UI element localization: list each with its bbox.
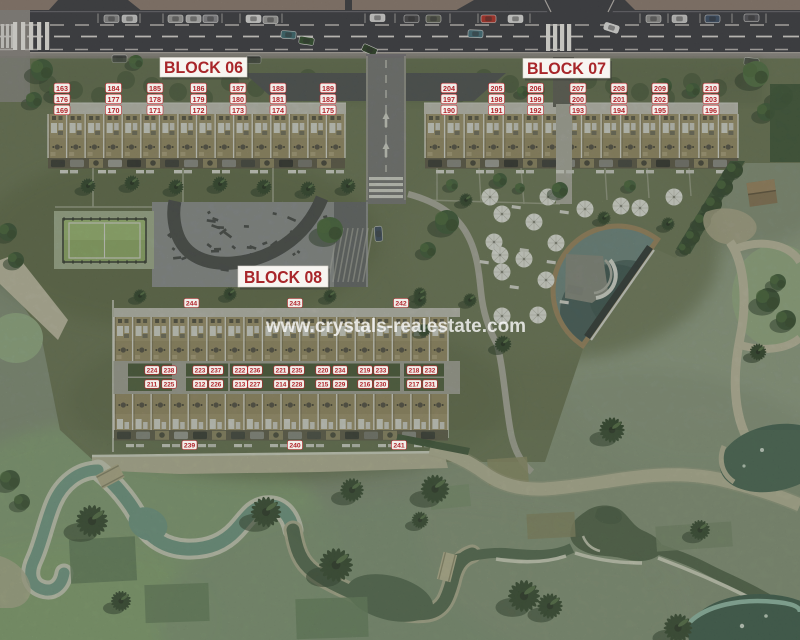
svg-text:228: 228: [292, 382, 303, 389]
svg-text:223: 223: [195, 368, 206, 375]
svg-text:171: 171: [149, 106, 161, 115]
svg-text:174: 174: [272, 106, 284, 115]
svg-text:209: 209: [654, 84, 666, 93]
svg-text:212: 212: [195, 382, 206, 389]
svg-text:www.crystals-realestate.com: www.crystals-realestate.com: [265, 316, 526, 337]
svg-text:226: 226: [211, 382, 222, 389]
svg-text:189: 189: [322, 84, 334, 93]
svg-text:216: 216: [360, 382, 371, 389]
svg-text:193: 193: [572, 106, 584, 115]
svg-text:170: 170: [108, 106, 120, 115]
svg-text:240: 240: [289, 443, 301, 450]
svg-text:163: 163: [56, 84, 68, 93]
svg-text:BLOCK 06: BLOCK 06: [164, 59, 243, 77]
svg-text:BLOCK 07: BLOCK 07: [527, 60, 606, 78]
svg-text:169: 169: [56, 106, 68, 115]
svg-text:179: 179: [193, 95, 205, 104]
svg-text:204: 204: [443, 84, 455, 93]
svg-text:211: 211: [147, 382, 158, 389]
svg-text:217: 217: [409, 382, 420, 389]
svg-text:178: 178: [149, 95, 161, 104]
svg-text:175: 175: [322, 106, 334, 115]
svg-text:173: 173: [232, 106, 244, 115]
svg-text:191: 191: [491, 106, 503, 115]
svg-text:205: 205: [491, 84, 503, 93]
svg-text:235: 235: [292, 368, 303, 375]
svg-text:238: 238: [164, 368, 175, 375]
svg-text:214: 214: [276, 382, 287, 389]
svg-text:184: 184: [108, 84, 120, 93]
svg-text:234: 234: [335, 368, 346, 375]
svg-text:219: 219: [360, 368, 371, 375]
svg-text:182: 182: [322, 95, 334, 104]
svg-text:BLOCK 08: BLOCK 08: [244, 267, 322, 287]
svg-text:176: 176: [56, 95, 68, 104]
svg-text:186: 186: [193, 84, 205, 93]
svg-text:243: 243: [289, 301, 301, 308]
svg-text:213: 213: [235, 382, 246, 389]
svg-text:241: 241: [393, 443, 405, 450]
svg-text:192: 192: [530, 106, 542, 115]
svg-text:227: 227: [250, 382, 261, 389]
svg-text:196: 196: [705, 106, 717, 115]
svg-text:208: 208: [613, 84, 625, 93]
svg-text:194: 194: [613, 106, 625, 115]
svg-text:225: 225: [164, 382, 175, 389]
svg-text:236: 236: [250, 368, 261, 375]
svg-text:218: 218: [409, 368, 420, 375]
svg-text:187: 187: [232, 84, 244, 93]
svg-text:195: 195: [654, 106, 666, 115]
svg-text:215: 215: [318, 382, 329, 389]
svg-text:239: 239: [184, 443, 196, 450]
svg-text:202: 202: [654, 95, 666, 104]
svg-text:221: 221: [276, 368, 287, 375]
svg-text:233: 233: [376, 368, 387, 375]
svg-text:231: 231: [425, 382, 436, 389]
svg-text:244: 244: [186, 301, 198, 308]
svg-text:197: 197: [443, 95, 455, 104]
svg-text:222: 222: [235, 368, 246, 375]
svg-text:237: 237: [211, 368, 222, 375]
svg-text:180: 180: [232, 95, 244, 104]
svg-text:207: 207: [572, 84, 584, 93]
svg-text:242: 242: [395, 301, 407, 308]
svg-text:200: 200: [572, 95, 584, 104]
svg-text:224: 224: [147, 368, 158, 375]
svg-text:185: 185: [149, 84, 161, 93]
svg-text:210: 210: [705, 84, 717, 93]
svg-text:232: 232: [425, 368, 436, 375]
svg-text:229: 229: [335, 382, 346, 389]
svg-text:198: 198: [491, 95, 503, 104]
svg-text:181: 181: [272, 95, 284, 104]
svg-text:188: 188: [272, 84, 284, 93]
svg-text:177: 177: [108, 95, 120, 104]
svg-text:172: 172: [193, 106, 205, 115]
svg-text:203: 203: [705, 95, 717, 104]
svg-text:206: 206: [530, 84, 542, 93]
svg-text:199: 199: [530, 95, 542, 104]
svg-text:190: 190: [443, 106, 455, 115]
svg-text:220: 220: [318, 368, 329, 375]
svg-text:201: 201: [613, 95, 625, 104]
svg-text:230: 230: [376, 382, 387, 389]
